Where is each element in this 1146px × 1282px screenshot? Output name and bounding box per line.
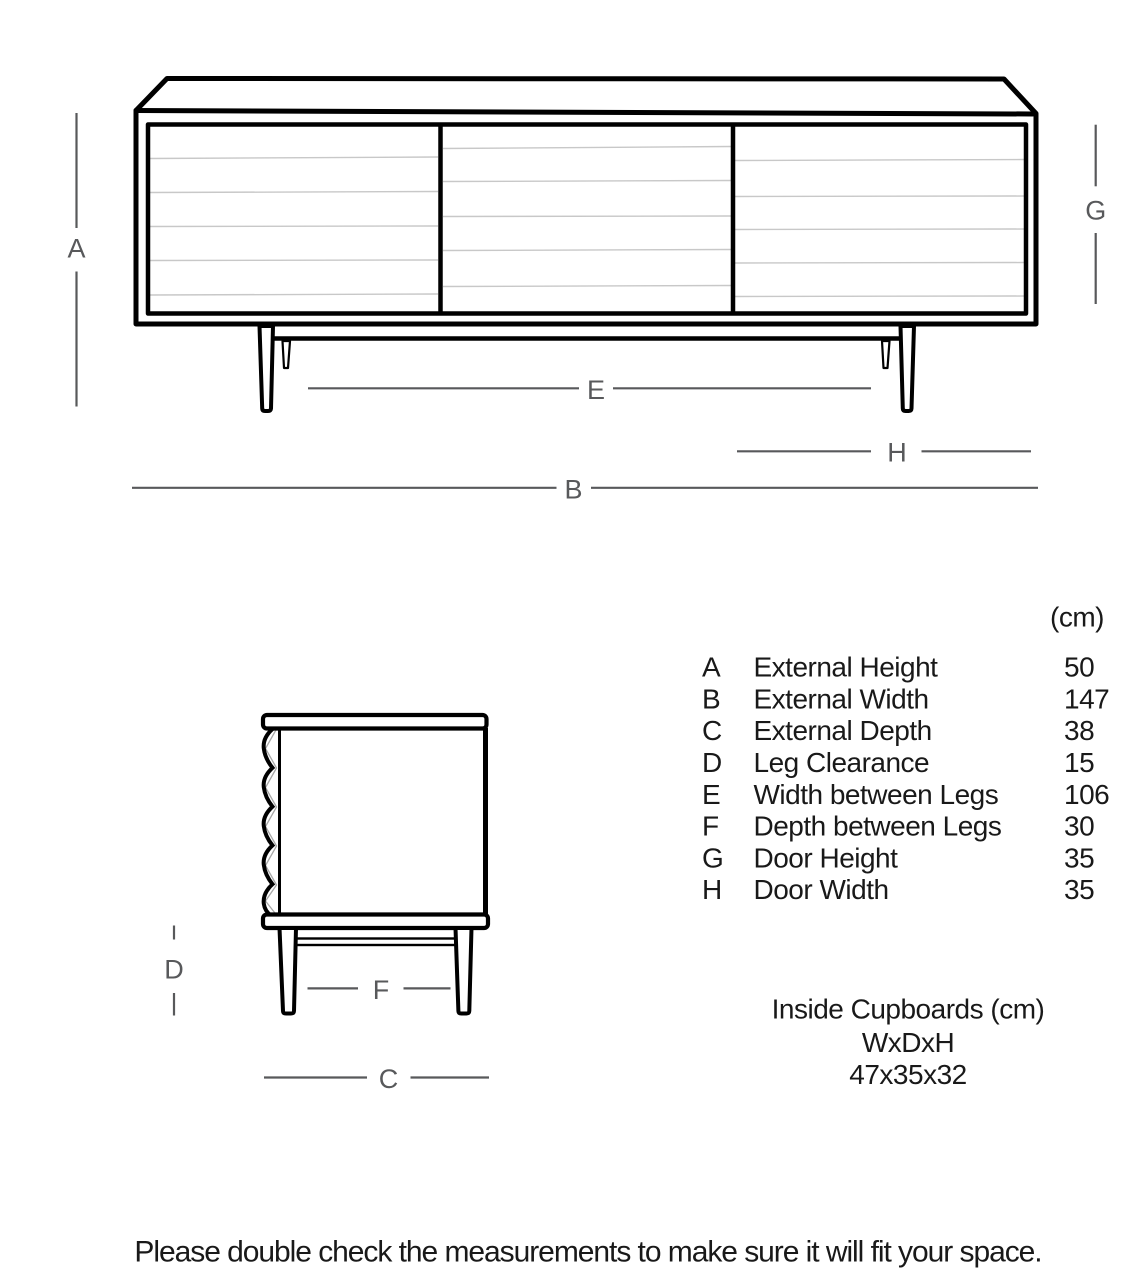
svg-text:15: 15 <box>1064 747 1094 778</box>
svg-text:Please double check the measur: Please double check the measurements to … <box>134 1236 1041 1269</box>
svg-text:B: B <box>564 475 582 505</box>
svg-text:G: G <box>702 842 723 873</box>
svg-text:147: 147 <box>1064 683 1109 714</box>
svg-text:External Height: External Height <box>754 652 939 683</box>
svg-text:D: D <box>164 955 184 985</box>
svg-text:External Width: External Width <box>754 683 929 714</box>
svg-text:Door Height: Door Height <box>754 842 899 873</box>
svg-text:D: D <box>702 747 722 778</box>
svg-text:Leg Clearance: Leg Clearance <box>754 747 930 778</box>
svg-text:E: E <box>702 779 720 810</box>
svg-text:50: 50 <box>1064 652 1094 683</box>
svg-text:Depth between Legs: Depth between Legs <box>754 811 1002 842</box>
svg-text:30: 30 <box>1064 811 1094 842</box>
svg-text:F: F <box>373 975 390 1005</box>
svg-text:47x35x32: 47x35x32 <box>849 1059 966 1090</box>
svg-text:(cm): (cm) <box>1050 602 1104 633</box>
svg-text:H: H <box>887 438 907 468</box>
svg-text:Width between Legs: Width between Legs <box>754 779 999 810</box>
svg-text:C: C <box>379 1064 399 1094</box>
svg-text:H: H <box>702 874 722 905</box>
svg-text:External Depth: External Depth <box>754 715 932 746</box>
svg-text:35: 35 <box>1064 842 1094 873</box>
svg-text:B: B <box>702 683 720 714</box>
svg-text:E: E <box>587 375 605 405</box>
svg-text:C: C <box>702 715 722 746</box>
svg-text:Inside Cupboards (cm): Inside Cupboards (cm) <box>772 994 1045 1025</box>
svg-text:38: 38 <box>1064 715 1094 746</box>
svg-text:Door Width: Door Width <box>754 874 889 905</box>
svg-text:106: 106 <box>1064 779 1109 810</box>
svg-text:F: F <box>702 811 719 842</box>
svg-text:WxDxH: WxDxH <box>862 1027 954 1058</box>
svg-text:35: 35 <box>1064 874 1094 905</box>
svg-text:A: A <box>67 234 85 264</box>
svg-text:A: A <box>702 652 721 683</box>
svg-text:G: G <box>1085 196 1106 226</box>
